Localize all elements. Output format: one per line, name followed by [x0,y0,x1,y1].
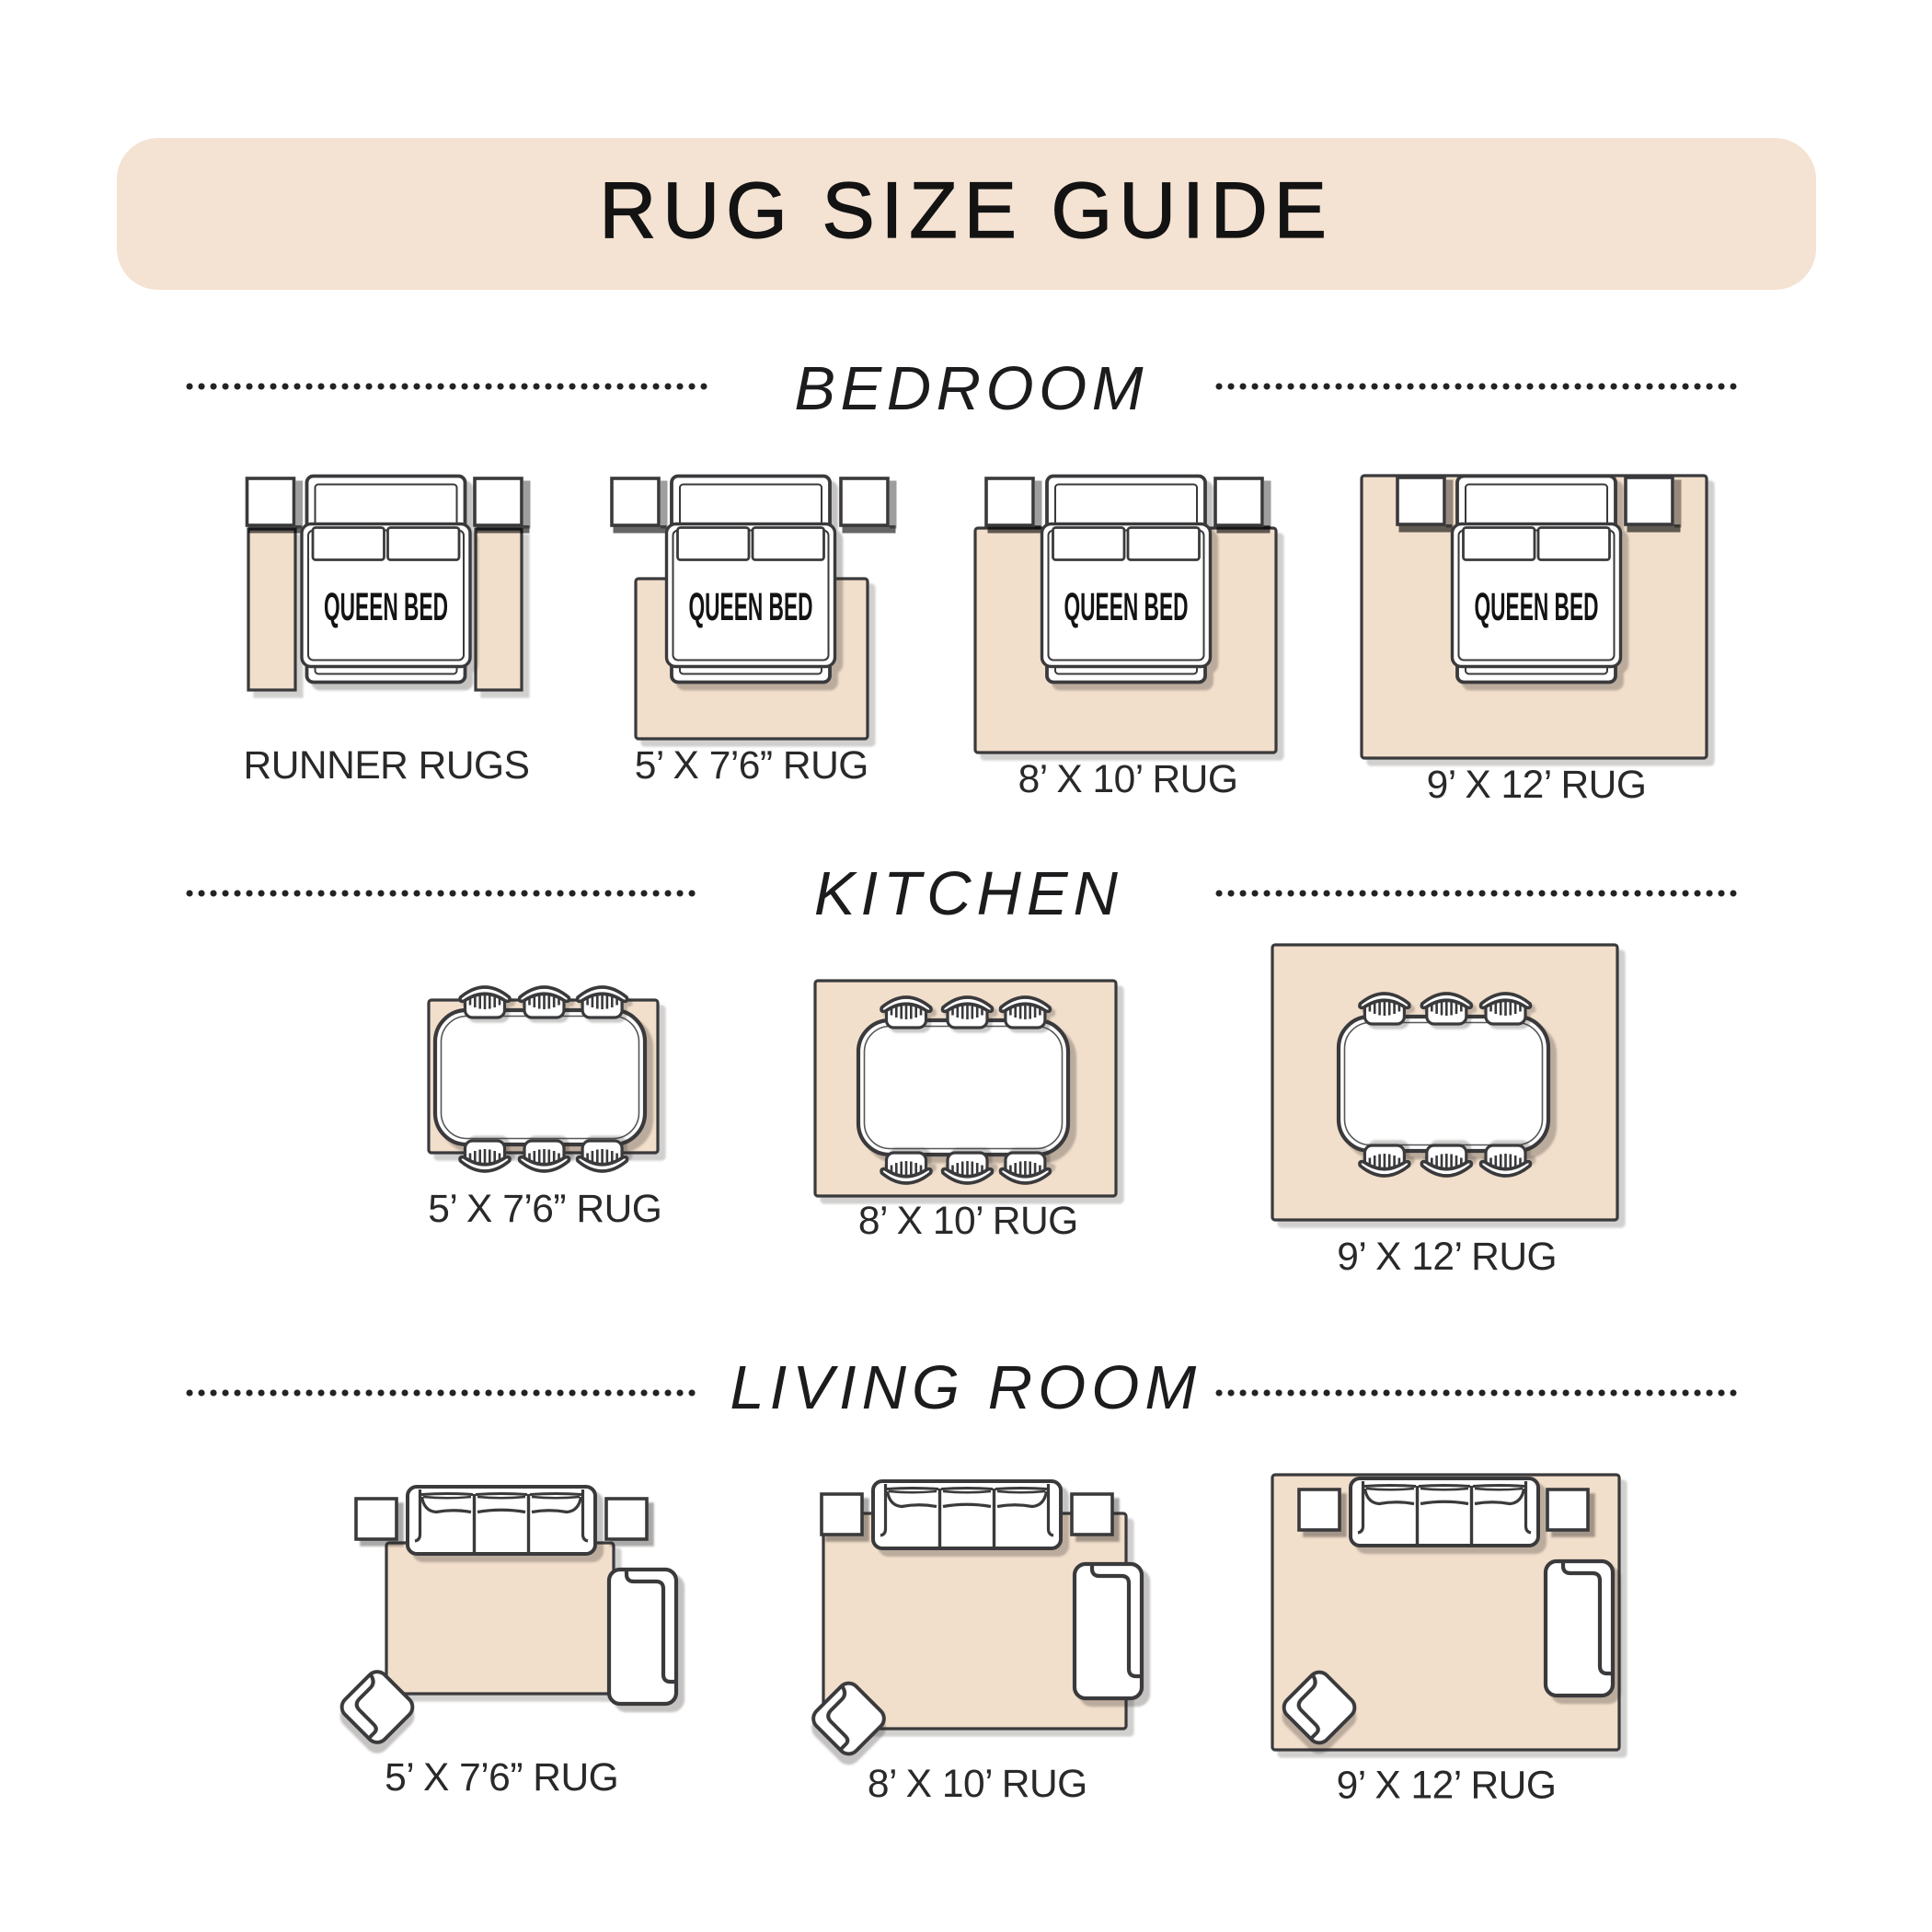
svg-text:RUG SIZE GUIDE: RUG SIZE GUIDE [599,167,1333,255]
svg-text:5’ X 7’6” RUG: 5’ X 7’6” RUG [428,1188,661,1231]
svg-text:9’ X 12’ RUG: 9’ X 12’ RUG [1337,1765,1557,1808]
svg-text:8’ X 10’ RUG: 8’ X 10’ RUG [1018,758,1238,801]
svg-text:5’ X 7’6” RUG: 5’ X 7’6” RUG [635,744,868,788]
svg-text:RUNNER RUGS: RUNNER RUGS [244,744,530,788]
svg-text:9’ X 12’ RUG: 9’ X 12’ RUG [1427,764,1647,807]
svg-text:5’ X 7’6” RUG: 5’ X 7’6” RUG [385,1756,618,1800]
svg-text:LIVING ROOM: LIVING ROOM [730,1353,1202,1422]
svg-text:8’ X 10’ RUG: 8’ X 10’ RUG [868,1763,1087,1806]
svg-text:KITCHEN: KITCHEN [814,859,1123,928]
svg-text:BEDROOM: BEDROOM [794,354,1148,423]
svg-text:8’ X 10’ RUG: 8’ X 10’ RUG [858,1200,1078,1243]
svg-text:9’ X 12’ RUG: 9’ X 12’ RUG [1337,1236,1557,1279]
